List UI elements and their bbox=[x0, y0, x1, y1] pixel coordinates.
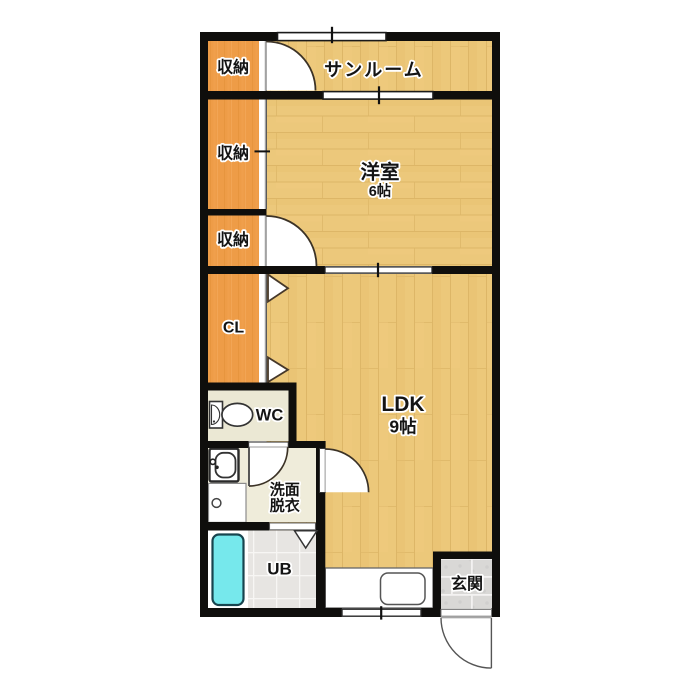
svg-text:洗面: 洗面 bbox=[270, 481, 300, 499]
svg-text:サンルーム: サンルーム bbox=[324, 60, 423, 80]
svg-text:洋室: 洋室 bbox=[360, 161, 399, 184]
svg-text:6帖: 6帖 bbox=[369, 182, 392, 200]
svg-text:玄関: 玄関 bbox=[451, 574, 483, 593]
svg-text:脱衣: 脱衣 bbox=[270, 497, 300, 515]
svg-text:LDK: LDK bbox=[381, 393, 424, 416]
svg-text:収納: 収納 bbox=[217, 58, 249, 77]
svg-text:WC: WC bbox=[256, 407, 284, 425]
svg-text:収納: 収納 bbox=[217, 230, 249, 249]
svg-text:CL: CL bbox=[223, 320, 245, 337]
svg-text:UB: UB bbox=[267, 560, 292, 579]
svg-text:9帖: 9帖 bbox=[389, 417, 417, 437]
svg-text:収納: 収納 bbox=[217, 144, 249, 163]
